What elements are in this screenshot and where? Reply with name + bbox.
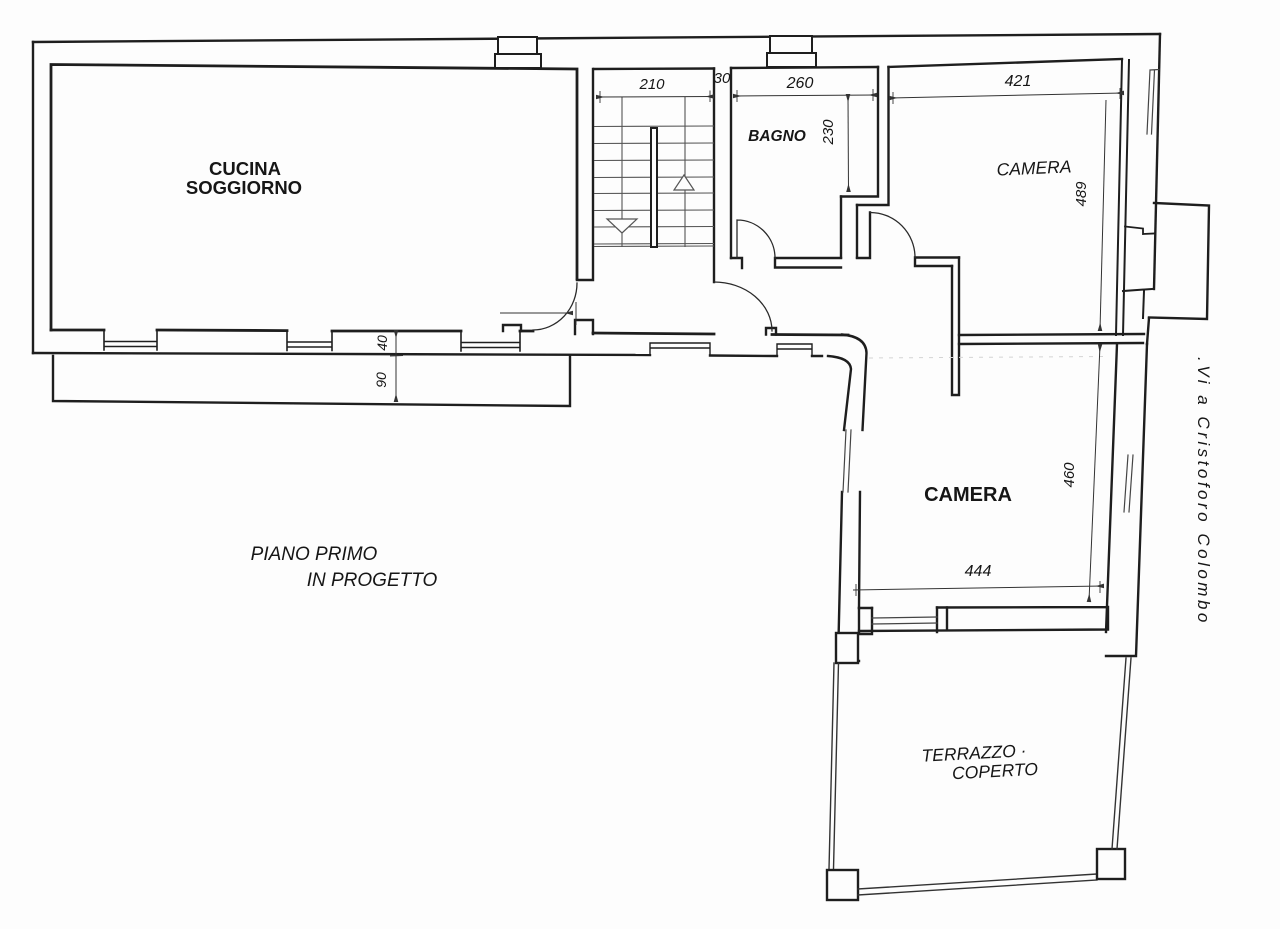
svg-text:489: 489 (1073, 181, 1090, 207)
svg-text:230: 230 (820, 119, 837, 146)
svg-text:CAMERA: CAMERA (924, 484, 1012, 506)
svg-text:PIANO PRIMO: PIANO PRIMO (251, 544, 378, 565)
svg-text:460: 460 (1061, 462, 1078, 488)
svg-text:30: 30 (714, 70, 731, 87)
svg-text:421: 421 (1005, 73, 1032, 90)
svg-text:.Vi a Cristoforo Colombo: .Vi a Cristoforo Colombo (1194, 357, 1213, 626)
svg-text:444: 444 (965, 563, 992, 580)
svg-text:CUCINA: CUCINA (209, 158, 281, 179)
svg-text:SOGGIORNO: SOGGIORNO (186, 177, 302, 198)
svg-text:COPERTO: COPERTO (952, 759, 1039, 783)
svg-text:210: 210 (638, 76, 665, 93)
svg-text:90: 90 (373, 372, 389, 388)
svg-text:260: 260 (786, 75, 814, 92)
svg-text:40: 40 (374, 335, 390, 351)
svg-text:BAGNO: BAGNO (748, 128, 806, 145)
svg-text:CAMERA: CAMERA (996, 156, 1072, 179)
svg-text:IN PROGETTO: IN PROGETTO (307, 570, 438, 591)
